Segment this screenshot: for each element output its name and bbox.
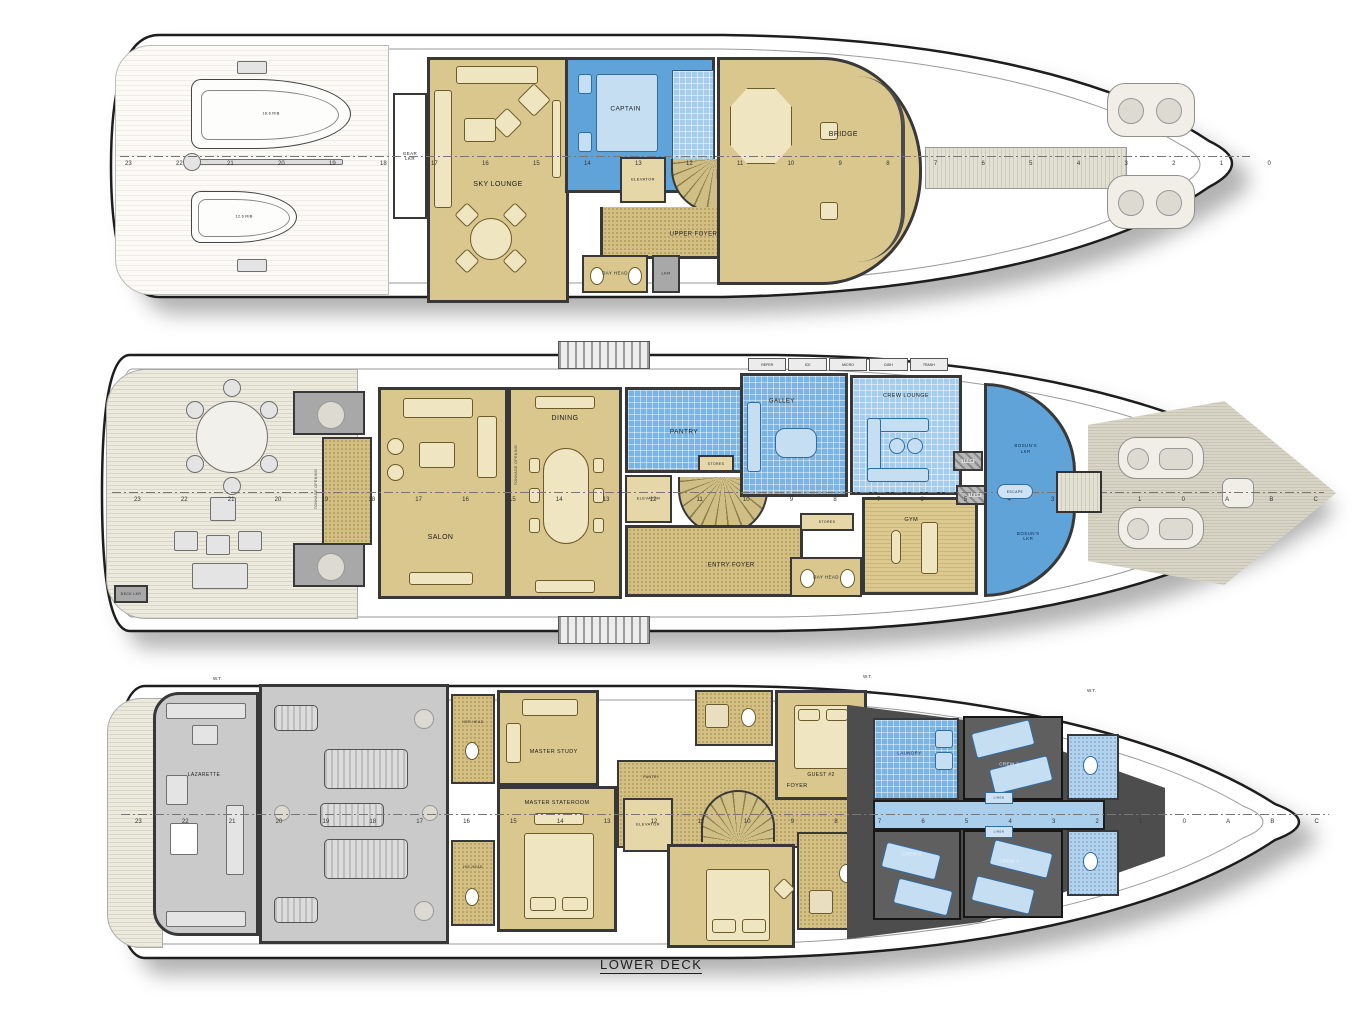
station-number: 21 [229, 819, 236, 825]
appliance-box: ICE [788, 358, 826, 371]
aft-seat [206, 535, 230, 555]
station-number: 22 [181, 497, 188, 503]
upper-deck-plan: 16.6 RIB 12.6 RIB GEAR LKR [95, 25, 1265, 310]
sofa [522, 699, 578, 716]
vent-box [293, 391, 365, 435]
station-number: 15 [510, 819, 517, 825]
sofa [403, 398, 473, 418]
station-number: 16 [462, 497, 469, 503]
appliance-box: MICRO [829, 358, 867, 371]
station-number: 6 [982, 161, 985, 167]
appliance-box: TRASH [910, 358, 948, 371]
station-number: 19 [323, 819, 330, 825]
station-number: 10 [743, 497, 750, 503]
station-number: 17 [431, 161, 438, 167]
bow-sunpad [1107, 175, 1195, 229]
crew1-cabin: CREW 1 [963, 830, 1063, 918]
stores-label: STORES [708, 461, 725, 465]
station-number: 18 [380, 161, 387, 167]
station-number: 9 [791, 819, 794, 825]
generator [274, 705, 318, 731]
crew-table [907, 438, 923, 454]
station-number: 3 [1124, 161, 1127, 167]
station-number: 19 [329, 161, 336, 167]
entry-foyer: ENTRY FOYER [625, 525, 803, 597]
appliance-strip: REFERICEMICRODISHTRASH [748, 358, 948, 371]
station-number: 22 [182, 819, 189, 825]
main-day-head: DAY HEAD [790, 557, 862, 597]
station-number: 21 [227, 161, 234, 167]
pillow [826, 709, 848, 721]
crew-head [1067, 830, 1119, 896]
lower-foyer-label: FOYER [787, 782, 808, 788]
captain-label: CAPTAIN [610, 106, 641, 113]
bosuns-locker-label: BOSUN'S LKR [1011, 531, 1045, 541]
galley-label: GALLEY [769, 399, 795, 406]
windlass-drum [1127, 518, 1149, 540]
escape-label: ESCAPE [1007, 489, 1024, 493]
credenza [409, 572, 473, 585]
pillow [798, 709, 820, 721]
station-number: 20 [276, 819, 283, 825]
linen-locker: LINEN [985, 792, 1013, 804]
stores-label: STORES [819, 520, 836, 524]
station-number: 11 [698, 819, 704, 825]
crew-head [1067, 734, 1119, 800]
windlass-ghost [1156, 98, 1182, 124]
shower [809, 890, 833, 914]
station-number: 10 [788, 161, 795, 167]
sink [628, 267, 642, 285]
tonnage-opening-label: TONNAGE OPENING [514, 445, 518, 485]
dining-chair [593, 458, 604, 473]
treadmill [921, 522, 938, 574]
sideboard [535, 580, 595, 593]
shelving [226, 805, 244, 875]
aft-chair [186, 455, 204, 473]
station-number: 14 [557, 819, 564, 825]
sink [840, 569, 855, 588]
station-number: 7 [934, 161, 937, 167]
aft-chair [223, 379, 241, 397]
workbench [166, 911, 246, 927]
crew3-cabin: CREW 3 [873, 830, 961, 920]
sofa [434, 90, 452, 208]
exercise-bench [891, 530, 901, 564]
sofa [456, 66, 538, 84]
station-number: 6 [921, 819, 924, 825]
main-engine [324, 839, 408, 879]
workbench [166, 703, 246, 719]
washer [935, 730, 953, 748]
station-number: 23 [134, 497, 141, 503]
station-number: B [1269, 497, 1273, 503]
guest2-label: GUEST #2 [807, 773, 834, 779]
master-stateroom-label: MASTER STATEROOM [517, 800, 597, 806]
upper-day-head: DAY HEAD [582, 255, 648, 293]
crew-bunk [893, 878, 954, 917]
pillow [712, 919, 736, 933]
station-number: A [1225, 497, 1229, 503]
main-elevator-label: ELEVATOR [637, 497, 661, 502]
bow-sunpad [1107, 83, 1195, 137]
station-number: 23 [125, 161, 132, 167]
station-number: C [1315, 819, 1319, 825]
escape-hatch: ESCAPE [997, 484, 1033, 499]
captain-head [672, 70, 714, 170]
deck-plan-title: LOWER DECK [600, 957, 702, 974]
his-head: HIS HEAD [451, 840, 495, 926]
station-number: 6 [920, 497, 923, 503]
bosuns-locker-label: BOSUN'S LKR [1009, 443, 1043, 453]
crew2-cabin: CREW 2 [963, 716, 1063, 800]
station-number: A [1226, 819, 1230, 825]
main-engine [324, 749, 408, 789]
station-number: 15 [533, 161, 540, 167]
lower-elevator-label: ELEVATOR [636, 823, 660, 828]
toilet [1083, 852, 1098, 871]
gym-label: GYM [904, 517, 918, 523]
sofa [477, 416, 497, 478]
station-number: 11 [737, 161, 743, 167]
wt-bulkhead-label: W.T. [1087, 688, 1096, 693]
station-number: 19 [322, 497, 329, 503]
pump [414, 901, 434, 921]
dining-chair [529, 518, 540, 533]
linen-label: LINEN [994, 830, 1005, 833]
station-number: 5 [964, 497, 967, 503]
upper-lkr-label: LKR [662, 272, 671, 277]
main-stores-aft: STORES [698, 455, 734, 472]
crew2-label: CREW 2 [999, 762, 1019, 767]
windlass-ghost [1118, 190, 1144, 216]
linen-locker: LINEN [985, 826, 1013, 838]
toilet [590, 267, 604, 285]
sideboard [535, 396, 595, 409]
pump [414, 709, 434, 729]
station-number: 3 [1052, 819, 1055, 825]
upper-station-numbers: 23222120191817161514131211109876543210 [125, 161, 1271, 167]
helm-chair [820, 202, 838, 220]
dining: DINING [508, 387, 622, 599]
tech-label: TECH [968, 493, 981, 497]
crew-bunk [971, 719, 1036, 759]
life-raft-box [237, 61, 267, 74]
station-number: 7 [878, 819, 881, 825]
tech-label: TECH [961, 459, 974, 463]
station-number: 2 [1172, 161, 1175, 167]
station-number: 8 [834, 819, 837, 825]
crew3-label: CREW 3 [902, 852, 922, 857]
salon-label: SALON [428, 534, 454, 542]
gangway-stairs [558, 616, 650, 644]
sky-lounge: SKY LOUNGE [427, 57, 569, 303]
crew-bunk [881, 842, 942, 881]
bosun-bridge-walk [1056, 471, 1102, 513]
crew-lounge-label: CREW LOUNGE [883, 393, 929, 399]
windlass-ghost [1156, 190, 1182, 216]
gym: GYM [862, 497, 978, 595]
barrel-chair [387, 438, 404, 455]
station-number: 13 [603, 497, 610, 503]
station-number: 18 [369, 819, 376, 825]
station-number: 13 [635, 161, 642, 167]
aft-chair [186, 401, 204, 419]
station-number: 4 [1077, 161, 1080, 167]
his-head-label: HIS HEAD [460, 865, 486, 869]
locker [166, 775, 188, 805]
aft-seat [238, 531, 262, 551]
master-stateroom: MASTER STATEROOM [497, 786, 617, 932]
main-day-head-label: DAY HEAD [813, 574, 839, 579]
toilet [465, 742, 479, 760]
deck-locker: DECK LKR [114, 585, 148, 603]
station-number: 10 [744, 819, 751, 825]
crew-bunk [971, 875, 1036, 915]
windlass [1118, 437, 1204, 479]
her-head: HER HEAD [451, 694, 495, 784]
sky-lounge-label: SKY LOUNGE [473, 181, 522, 189]
dining-chair [593, 518, 604, 533]
gear-locker-label: GEAR LKR [398, 151, 422, 161]
galley: GALLEY [740, 373, 848, 497]
tech-space: TECH [953, 451, 983, 471]
aft-seat [174, 531, 198, 551]
coffee-table [464, 118, 496, 142]
nightstand [578, 132, 592, 152]
upper-elevator-label: ELEVATOR [631, 178, 655, 183]
master-study-label: MASTER STUDY [528, 749, 580, 755]
pantry-label: PANTRY [670, 428, 698, 435]
station-number: 9 [839, 161, 842, 167]
station-number: 5 [1029, 161, 1032, 167]
station-number: 18 [368, 497, 375, 503]
aft-chair [260, 401, 278, 419]
armchair [491, 107, 522, 138]
aft-sofa [192, 563, 248, 589]
lower-centerline [121, 814, 1329, 815]
aft-chair [260, 455, 278, 473]
dryer [935, 752, 953, 770]
windlass-drum [1127, 448, 1149, 470]
station-number: 15 [509, 497, 516, 503]
crew-table [889, 438, 905, 454]
lower-pantry-label: PANTRY [643, 775, 659, 779]
station-number: 1 [1138, 497, 1141, 503]
dining-table [543, 448, 589, 544]
deck-hatch [1222, 478, 1254, 508]
station-number: 0 [1267, 161, 1270, 167]
station-number: 16 [482, 161, 489, 167]
laundry-label: LAUNDRY [897, 750, 921, 755]
station-number: 14 [584, 161, 591, 167]
tender-large-label: 16.6 RIB [262, 112, 279, 117]
game-table [470, 218, 512, 260]
pillow [562, 897, 588, 911]
lazarette-label: LAZARETTE [188, 773, 221, 779]
pillow [742, 919, 766, 933]
station-number: 13 [604, 819, 611, 825]
galley-island [775, 428, 817, 458]
lower-deck-plan: LAZARETTE HER HEAD HIS HEAD [95, 672, 1350, 972]
crew-lounge: CREW LOUNGE [850, 375, 962, 495]
crew-settee [867, 468, 929, 482]
station-number: 8 [886, 161, 889, 167]
windlass-motor [1159, 518, 1193, 540]
dining-chair [529, 458, 540, 473]
station-number: 7 [877, 497, 880, 503]
main-centerline [112, 492, 1324, 493]
station-number: 1 [1139, 819, 1142, 825]
lower-elevator: ELEVATOR [623, 798, 673, 852]
station-number: 9 [790, 497, 793, 503]
station-number: 17 [416, 819, 423, 825]
toilet [1083, 756, 1098, 775]
barrel-chair [387, 464, 404, 481]
entry-foyer-label: ENTRY FOYER [708, 563, 755, 570]
vent-box [293, 543, 365, 587]
bridge-label: BRIDGE [829, 131, 858, 139]
nightstand [578, 74, 592, 94]
toilet [741, 708, 756, 727]
station-number: 16 [463, 819, 470, 825]
guest2-bath [695, 690, 773, 746]
windlass [1118, 507, 1204, 549]
station-number: 0 [1183, 819, 1186, 825]
yacht-deck-plans: 16.6 RIB 12.6 RIB GEAR LKR [0, 0, 1357, 1020]
toilet [465, 888, 479, 906]
upper-lkr: LKR [652, 255, 680, 293]
generator [274, 897, 318, 923]
station-number: 8 [833, 497, 836, 503]
station-number: 22 [176, 161, 183, 167]
galley-counter [747, 402, 761, 472]
upper-day-head-label: DAY HEAD [602, 271, 628, 276]
salon: SALON [378, 387, 508, 599]
station-number: 1 [1220, 161, 1223, 167]
wt-bulkhead-label: W.T. [863, 674, 872, 679]
bridge-settee [730, 88, 792, 164]
station-number: 12 [686, 161, 693, 167]
shower [705, 704, 729, 728]
stove-box [192, 725, 218, 745]
station-number: 23 [135, 819, 142, 825]
main-station-numbers: 23222120191817161514131211109876543210AB… [134, 497, 1318, 503]
station-number: 0 [1182, 497, 1185, 503]
pillow [530, 897, 556, 911]
station-number: 21 [228, 497, 235, 503]
station-number: 17 [415, 497, 422, 503]
station-number: 4 [1008, 819, 1011, 825]
armchair [773, 878, 796, 901]
bridge-console [857, 76, 905, 262]
master-study: MASTER STUDY [497, 690, 599, 786]
station-number: 3 [1051, 497, 1054, 503]
gear-locker: GEAR LKR [393, 93, 427, 219]
tonnage-opening-label: TONNAGE OPENING [314, 469, 318, 509]
deck-locker-label: DECK LKR [121, 592, 142, 596]
lower-station-numbers: 23222120191817161514131211109876543210AB… [135, 819, 1319, 825]
bow-walkway [925, 147, 1127, 189]
coffee-table [419, 442, 455, 468]
windlass-motor [1159, 448, 1193, 470]
linen-label: LINEN [994, 796, 1005, 799]
desk [506, 723, 521, 763]
station-number: 20 [278, 161, 285, 167]
main-stores-fwd: STORES [800, 513, 854, 531]
life-raft-box [237, 259, 267, 272]
gangway-stairs [558, 341, 650, 369]
wc-room [170, 823, 198, 855]
upper-centerline [120, 156, 1250, 157]
crew1-label: CREW 1 [999, 858, 1019, 863]
station-number: B [1270, 819, 1274, 825]
aft-mosaic [322, 437, 372, 545]
fan-icon [317, 553, 345, 581]
tender-small-label: 12.6 RIB [235, 215, 252, 220]
station-number: 20 [275, 497, 282, 503]
windlass-ghost [1118, 98, 1144, 124]
upper-foyer-label: UPPER FOYER [670, 232, 717, 239]
bridge: BRIDGE [717, 57, 922, 285]
station-number: C [1314, 497, 1318, 503]
foredeck [1088, 401, 1336, 585]
station-number: 2 [1096, 819, 1099, 825]
wt-bulkhead-label: W.T. [213, 676, 222, 681]
station-number: 11 [697, 497, 703, 503]
main-deck-plan: TONNAGE OPENING SALON [88, 345, 1350, 640]
appliance-box: DISH [869, 358, 907, 371]
appliance-box: REFER [748, 358, 786, 371]
dining-label: DINING [552, 415, 579, 423]
station-number: 5 [965, 819, 968, 825]
her-head-label: HER HEAD [460, 720, 486, 724]
station-number: 14 [556, 497, 563, 503]
laundry: LAUNDRY [873, 718, 959, 800]
fan-icon [317, 401, 345, 429]
guest1-cabin [667, 844, 795, 948]
aft-dining-table [196, 401, 268, 473]
armchair [517, 83, 551, 117]
